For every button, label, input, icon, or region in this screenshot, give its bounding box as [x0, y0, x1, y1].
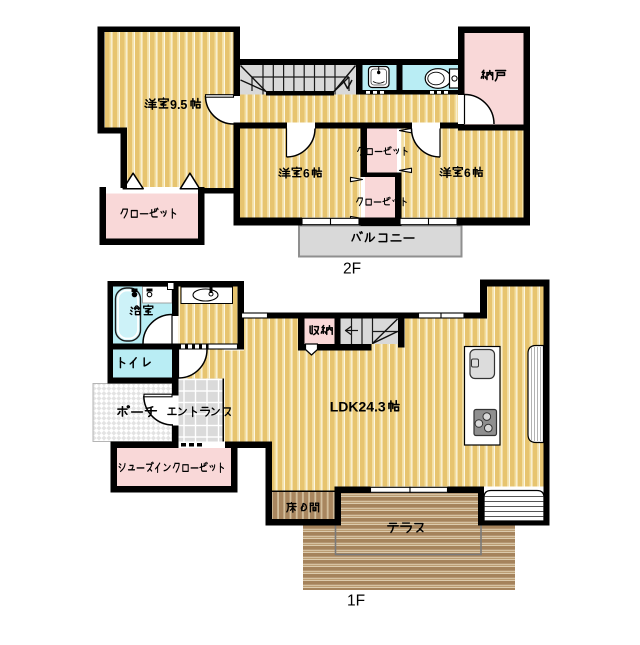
svg-text:2F: 2F: [343, 261, 361, 278]
svg-text:1F: 1F: [347, 593, 365, 610]
svg-text:6: 6: [464, 166, 471, 180]
svg-text:6: 6: [303, 167, 310, 181]
svg-text:9.5: 9.5: [170, 98, 187, 112]
svg-text:LDK24.3: LDK24.3: [330, 399, 386, 415]
